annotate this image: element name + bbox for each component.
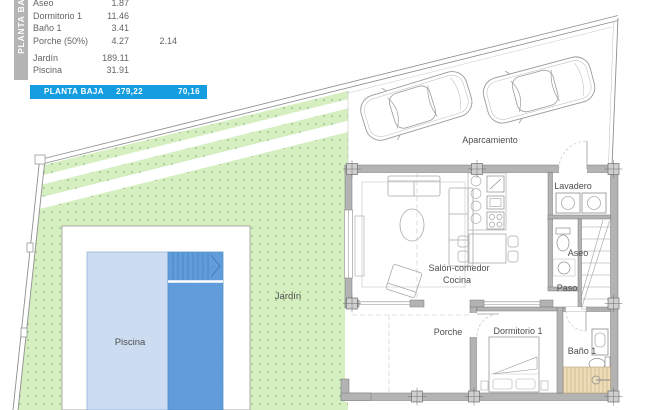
room-area-2	[129, 0, 177, 10]
label-piscina: Piscina	[115, 337, 146, 348]
fence-post	[35, 155, 45, 164]
shower	[564, 367, 611, 393]
fence-post	[21, 328, 27, 337]
label-paso: Paso	[557, 283, 578, 293]
room-name: Dormitorio 1	[33, 10, 99, 23]
room-area: 1.87	[99, 0, 129, 10]
table-sidebar-tab: PLANTA BAJA	[14, 0, 28, 80]
room-name: Aseo	[33, 0, 99, 10]
room-area: 11.46	[99, 10, 129, 23]
total-label: PLANTA BAJA	[44, 87, 108, 96]
table-row: Piscina 31.91	[33, 64, 223, 77]
label-lavadero: Lavadero	[554, 181, 592, 191]
table-row: Porche (50%) 4.27 2.14	[33, 35, 223, 48]
parking	[356, 50, 599, 148]
area-table: Aseo 1.87 Dormitorio 1 11.46 Baño 1 3.41…	[33, 0, 223, 77]
room-name: Piscina	[33, 64, 99, 77]
room-area-2	[129, 64, 177, 77]
label-aparcamiento: Aparcamiento	[462, 135, 518, 145]
room-area: 4.27	[99, 35, 129, 48]
room-area-2	[129, 10, 177, 23]
label-cocina: Cocina	[443, 275, 471, 285]
room-name: Jardín	[33, 52, 99, 65]
label-salon-comedor: Salón-comedor	[428, 263, 489, 273]
entrance-door	[559, 141, 587, 174]
label-porche: Porche	[434, 327, 463, 337]
room-area: 189.11	[99, 52, 129, 65]
room-area: 3.41	[99, 22, 129, 35]
bed	[481, 337, 548, 392]
total-row: PLANTA BAJA 279,22 70,16	[30, 85, 207, 99]
pool	[62, 226, 250, 410]
label-bano: Baño 1	[568, 346, 597, 356]
car	[479, 50, 599, 131]
table-row: Baño 1 3.41	[33, 22, 223, 35]
pool-shallow	[87, 252, 168, 410]
room-name: Baño 1	[33, 22, 99, 35]
room-area: 31.91	[99, 64, 129, 77]
table-row: Aseo 1.87	[33, 0, 223, 10]
label-dormitorio: Dormitorio 1	[493, 326, 542, 336]
table-row: Dormitorio 1 11.46	[33, 10, 223, 23]
label-aseo: Aseo	[568, 248, 589, 258]
table-row: Jardín 189.11	[33, 52, 223, 65]
room-area-2: 2.14	[129, 35, 177, 48]
floor-plan-page: Aparcamiento Lavadero Salón-comedor Coci…	[0, 0, 660, 410]
total-area: 279,22	[108, 87, 143, 96]
label-jardin: Jardín	[275, 291, 301, 302]
room-area-2	[129, 22, 177, 35]
fence-post	[27, 243, 33, 252]
table-sidebar-label: PLANTA BAJA	[16, 0, 26, 54]
room-name: Porche (50%)	[33, 35, 99, 48]
room-area-2	[129, 52, 177, 65]
total-area-2: 70,16	[178, 87, 200, 96]
